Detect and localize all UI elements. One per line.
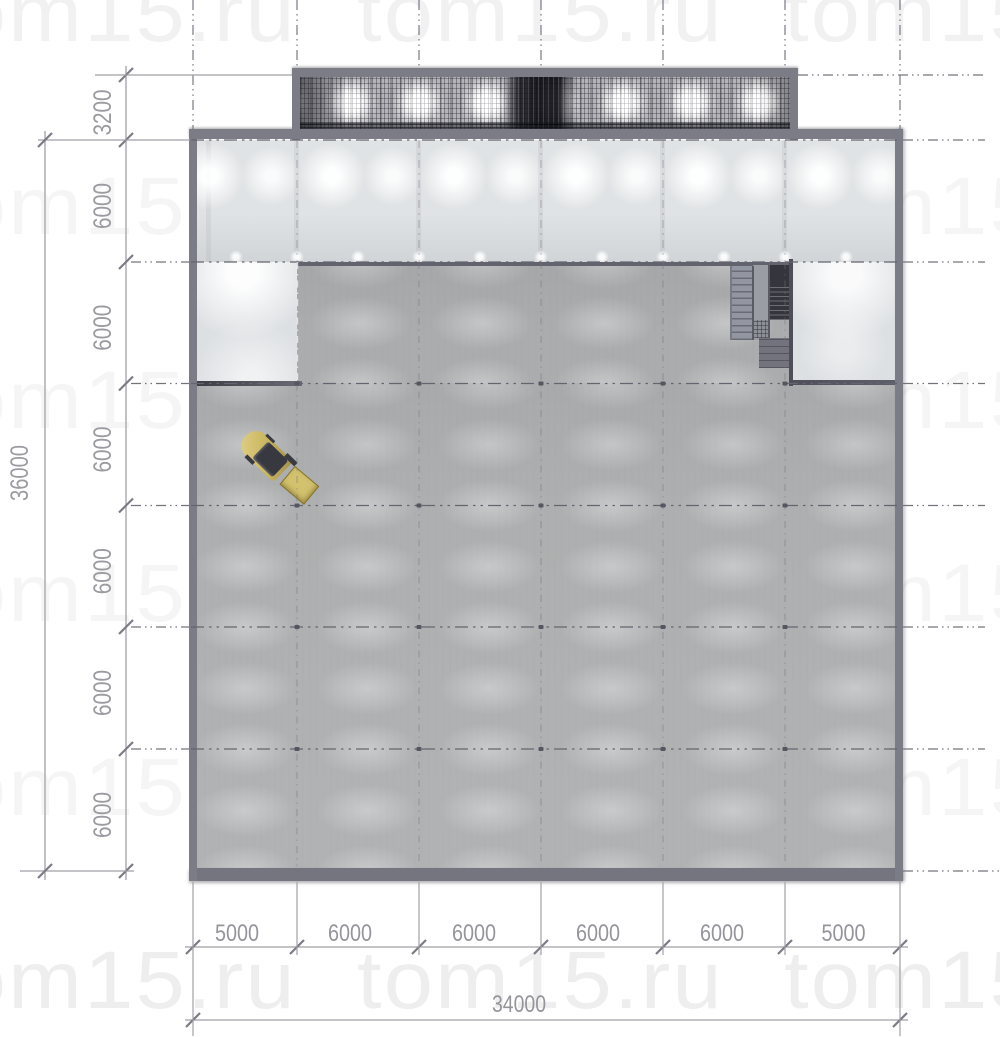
- svg-text:6000: 6000: [328, 920, 372, 947]
- svg-text:6000: 6000: [89, 792, 117, 838]
- svg-text:6000: 6000: [576, 920, 620, 947]
- svg-text:5000: 5000: [215, 920, 259, 947]
- svg-text:6000: 6000: [452, 920, 496, 947]
- svg-text:6000: 6000: [89, 305, 117, 351]
- svg-text:36000: 36000: [6, 445, 34, 501]
- svg-text:6000: 6000: [89, 427, 117, 473]
- svg-text:3200: 3200: [89, 90, 117, 136]
- svg-text:5000: 5000: [822, 920, 866, 947]
- svg-text:6000: 6000: [89, 670, 117, 716]
- svg-text:6000: 6000: [89, 183, 117, 229]
- svg-text:6000: 6000: [89, 548, 117, 594]
- svg-text:6000: 6000: [700, 920, 744, 947]
- svg-text:34000: 34000: [492, 991, 546, 1018]
